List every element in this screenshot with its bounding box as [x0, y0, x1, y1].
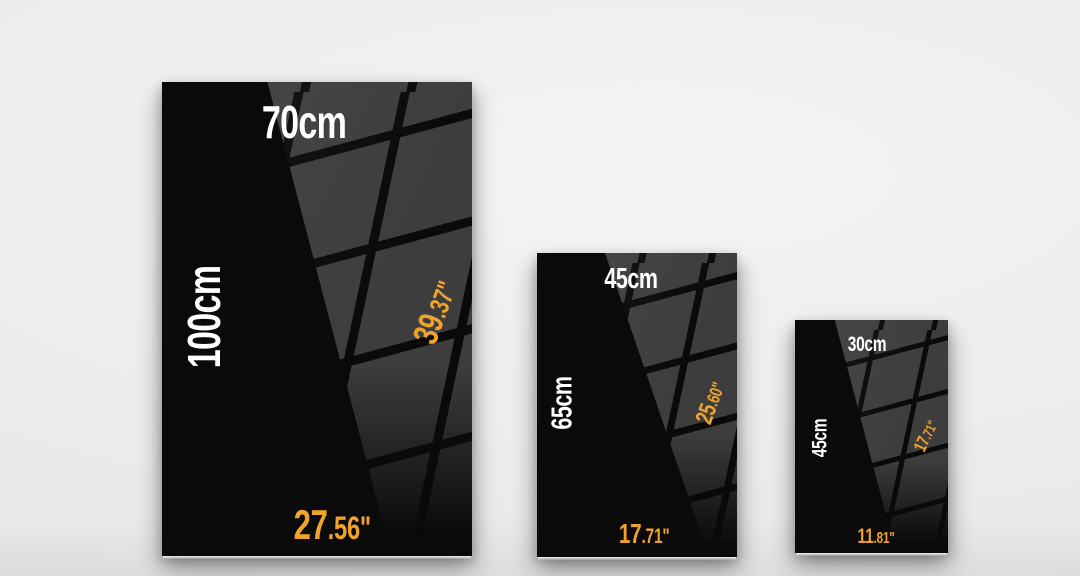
poster-large-height-cm-label: 100cm — [181, 266, 227, 369]
poster-medium-height-cm-label: 65cm — [549, 376, 578, 429]
poster-medium-width-inch-label: 17.71" — [537, 520, 737, 548]
poster-small-height-cm-label: 45cm — [810, 419, 831, 458]
poster-medium-width-cm-label: 45cm — [537, 265, 737, 294]
poster-small-width-inch-label: 11.81" — [795, 526, 948, 547]
poster-small-width-cm-label: 30cm — [795, 334, 948, 355]
poster-small: 30cm 45cm 17.71" 11.81" — [795, 320, 948, 553]
wall-background: 70cm 100cm 39.37" 27.56" 45cm 65cm 25.60… — [0, 0, 1080, 576]
poster-medium: 45cm 65cm 25.60" 17.71" — [537, 253, 737, 557]
poster-large-width-cm-label: 70cm — [162, 99, 472, 145]
poster-large: 70cm 100cm 39.37" 27.56" — [162, 82, 472, 556]
poster-large-width-inch-label: 27.56" — [162, 504, 472, 546]
